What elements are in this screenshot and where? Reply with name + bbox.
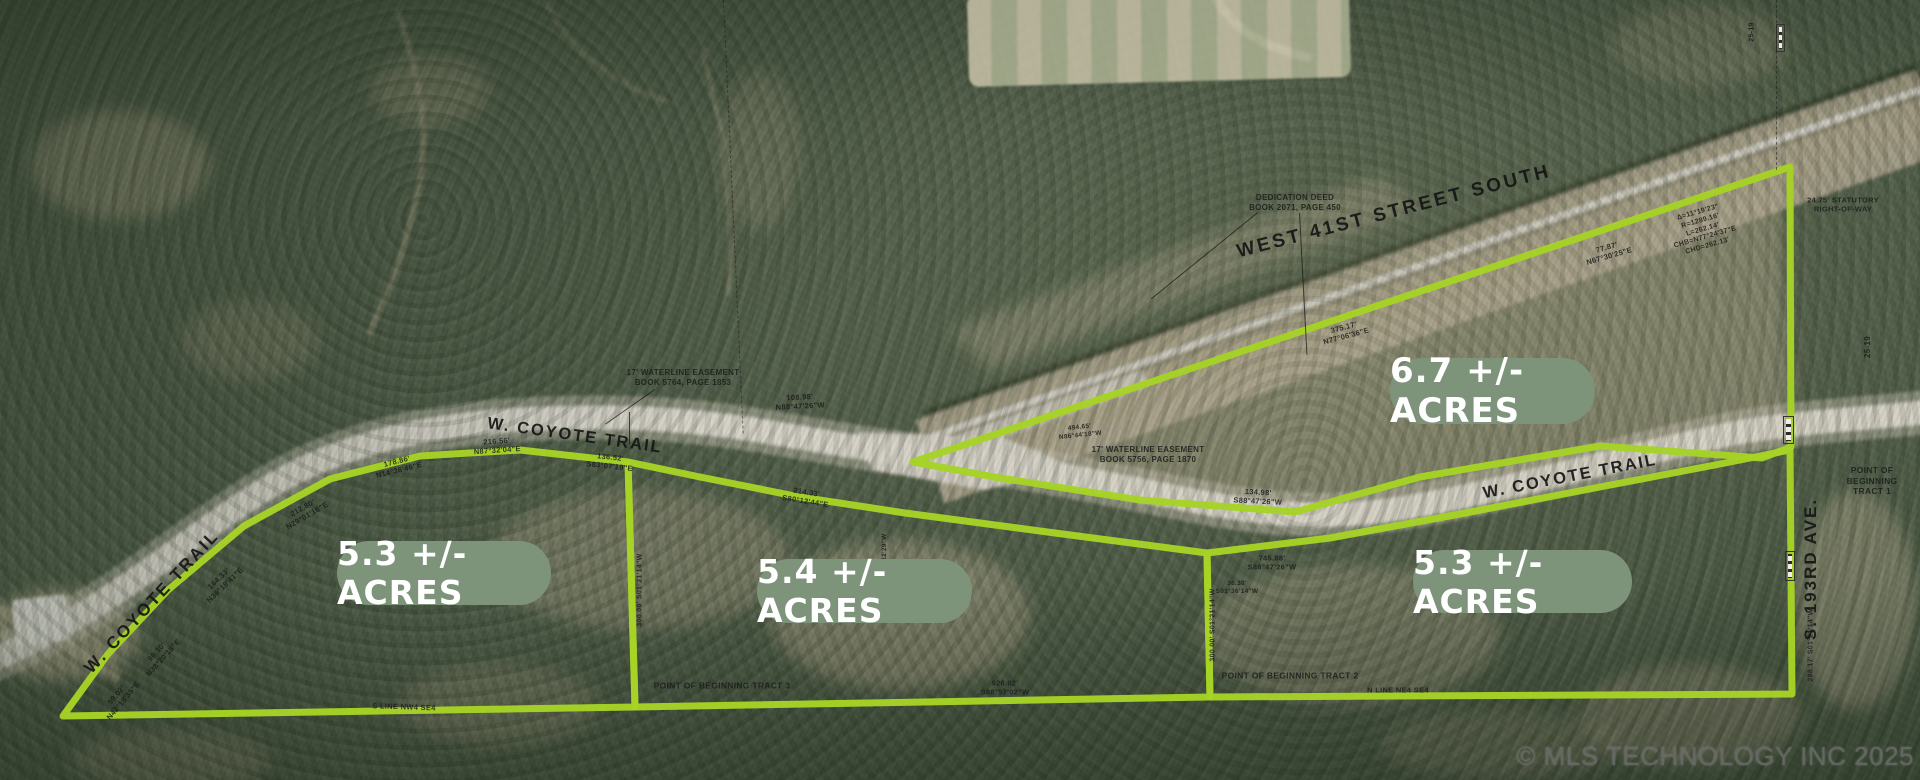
survey-annotation: 375.17' N77°06'36"E [1320,317,1370,347]
survey-annotation: 216.56' N87°32'04"E [473,435,521,457]
aerial-plat-map: 59.02' N42°18'35"E98.30' N38°20'18"E164.… [0,0,1920,780]
acreage-badge-middle: 5.4 +/- ACRES [757,559,972,623]
survey-annotation: 17' WATERLINE EASEMENT BOOK 5756, PAGE 1… [1092,445,1205,465]
survey-annotation: 36.38' S01°36'14"W [1216,580,1259,596]
survey-annotation: 745.88' S88°47'26"W [1248,554,1297,573]
acreage-badge-east: 5.3 +/- ACRES [1413,550,1632,613]
survey-annotation: 134.98' S88°47'26"W [1233,486,1283,507]
section-line [1776,0,1777,170]
survey-annotation: 77.87' N67°30'25"E [1583,236,1633,267]
survey-marker [1785,551,1795,581]
survey-annotation: POINT OF BEGINNING TRACT 1 [1847,465,1898,497]
survey-annotation: 17' WATERLINE EASEMENT BOOK 5764, PAGE 1… [627,368,740,388]
survey-marker [1783,416,1794,444]
acreage-badge-northeast: 6.7 +/- ACRES [1390,358,1595,424]
survey-annotation: 212.80' N29°01'18"E [280,492,330,532]
survey-annotation: S LINE NW4 SE4 [372,701,436,713]
survey-annotation: POINT OF BEGINNING TRACT 2 [1222,671,1359,682]
survey-annotation: 164.33' N36°18'41"E [199,559,246,605]
acreage-badge-west: 5.3 +/- ACRES [337,541,551,605]
survey-annotation: N LINE NE4 SE4 [1367,685,1429,694]
survey-annotation: 108.98' N88°47'26"W [775,391,825,412]
road-label-s-193rd-ave: S. 193RD AVE. [1801,498,1821,640]
survey-annotation: 59.02' N42°18'35"E [98,674,143,722]
leader-line [605,389,655,424]
survey-annotation: 98.30' N38°20'18"E [137,631,182,679]
survey-annotation: POINT OF BEGINNING TRACT 3 [654,681,791,692]
survey-annotation: 214.33' S80°12'44"E [781,484,830,510]
survey-annotation: 136.52' S83°07'19"E [586,450,634,474]
survey-annotation: 494.65' N86°44'18"W [1058,422,1103,443]
survey-annotation: 24.75' STATUTORY RIGHT-OF-WAY [1807,196,1879,215]
survey-annotation: Δ=11°19'23" R=1289.16' L=262.14' CHB=N77… [1666,200,1740,260]
survey-annotation: 926.02' S88°57'02"W [981,679,1030,698]
survey-annotation-layer: 59.02' N42°18'35"E98.30' N38°20'18"E164.… [0,0,1920,780]
mls-watermark: © MLS TECHNOLOGY INC 2025 [1516,741,1914,772]
survey-annotation: 25-19 [1863,336,1873,358]
survey-marker [1776,24,1785,52]
survey-annotation: DEDICATION DEED BOOK 2071, PAGE 450 [1249,193,1341,213]
survey-annotation: 178.86' N14°36'46"E [373,451,423,481]
survey-annotation: 25-19 [1749,22,1758,41]
survey-annotation: 300.00' S01°21'14"W [637,553,646,626]
survey-annotation: 300.00' S01°21'14"W [1210,588,1219,661]
